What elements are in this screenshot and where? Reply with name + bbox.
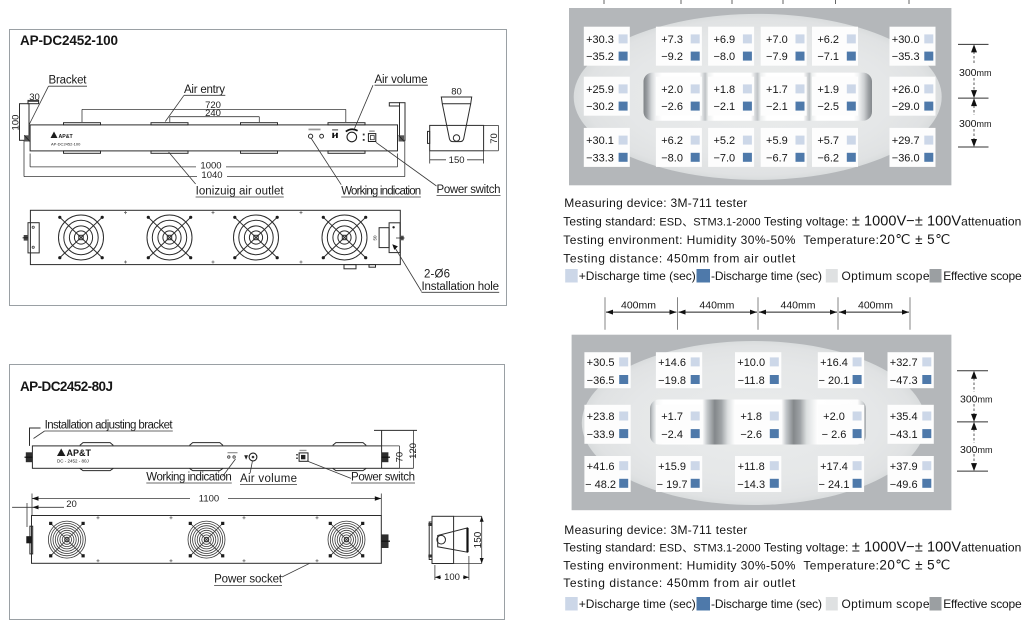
svg-text:+7.3: +7.3 — [661, 34, 683, 46]
svg-text:−6.2: −6.2 — [817, 152, 839, 164]
svg-text:Power switch: Power switch — [351, 472, 415, 484]
svg-text:Testing standard: ESD、STM3.1-2: Testing standard: ESD、STM3.1-2000 Testin… — [563, 214, 1021, 230]
svg-text:+6.9: +6.9 — [713, 34, 735, 46]
svg-text:150: 150 — [449, 155, 465, 166]
svg-text:80: 80 — [451, 87, 462, 98]
svg-text:−33.3: −33.3 — [586, 152, 614, 164]
svg-text:+16.4: +16.4 — [820, 357, 848, 369]
svg-text:Power socket: Power socket — [214, 574, 283, 586]
svg-text:70: 70 — [394, 452, 405, 463]
svg-text:Testing environment: Humidity: Testing environment: Humidity 30%-50% Te… — [563, 557, 950, 572]
svg-text:−2.1: −2.1 — [713, 101, 735, 113]
svg-text:+6.2: +6.2 — [661, 135, 683, 147]
svg-text:100: 100 — [11, 115, 22, 131]
svg-text:−7.1: −7.1 — [817, 51, 839, 63]
svg-text:−35.2: −35.2 — [586, 51, 614, 63]
svg-text:+1.8: +1.8 — [713, 84, 735, 96]
svg-text:−8.0: −8.0 — [713, 51, 735, 63]
svg-text:-Discharge time (sec): -Discharge time (sec) — [711, 597, 822, 611]
svg-text:2-Ø6: 2-Ø6 — [424, 269, 450, 281]
svg-text:+15.9: +15.9 — [658, 461, 686, 473]
svg-text:+35.4: +35.4 — [890, 411, 918, 423]
svg-text:−36.5: −36.5 — [587, 375, 615, 387]
svg-text:Air entry: Air entry — [184, 84, 225, 96]
svg-text:Testing distance: 450mm from a: Testing distance: 450mm from air outlet — [563, 252, 796, 266]
svg-text:−30.2: −30.2 — [586, 101, 614, 113]
svg-text:−19.8: −19.8 — [658, 375, 686, 387]
svg-text:−49.6: −49.6 — [890, 479, 918, 491]
svg-text:+17.4: +17.4 — [820, 461, 848, 473]
svg-text:+2.0: +2.0 — [661, 84, 683, 96]
svg-text:−7.9: −7.9 — [766, 51, 788, 63]
svg-text:−2.1: −2.1 — [766, 101, 788, 113]
svg-text:+14.6: +14.6 — [658, 357, 686, 369]
svg-text:+32.7: +32.7 — [890, 357, 918, 369]
svg-text:100: 100 — [444, 572, 460, 583]
svg-text:Air volume: Air volume — [375, 74, 428, 86]
svg-text:AP-DC2452-100: AP-DC2452-100 — [20, 33, 118, 48]
svg-text:−8.0: −8.0 — [661, 152, 683, 164]
svg-text:+30.5: +30.5 — [587, 357, 615, 369]
svg-text:Working indication: Working indication — [146, 472, 232, 484]
svg-text:+1.7: +1.7 — [766, 84, 788, 96]
svg-text:+5.9: +5.9 — [766, 135, 788, 147]
svg-text:AP&T: AP&T — [67, 448, 92, 458]
svg-text:Power switch: Power switch — [437, 184, 501, 196]
svg-text:−14.3: −14.3 — [737, 479, 765, 491]
svg-text:+1.7: +1.7 — [661, 411, 683, 423]
svg-text:− 20.1: − 20.1 — [819, 375, 850, 387]
svg-text:Effective scope: Effective scope — [943, 597, 1022, 611]
svg-text:+1.9: +1.9 — [817, 84, 839, 96]
svg-text:− 2.6: − 2.6 — [822, 429, 847, 441]
svg-text:150: 150 — [473, 531, 484, 548]
svg-text:Working indication: Working indication — [341, 186, 421, 198]
svg-text:+2.0: +2.0 — [823, 411, 845, 423]
svg-text:−2.4: −2.4 — [661, 429, 683, 441]
svg-text:+30.0: +30.0 — [892, 34, 920, 46]
svg-text:DC - 2452 - 80J: DC - 2452 - 80J — [57, 459, 89, 464]
svg-text:+5.2: +5.2 — [713, 135, 735, 147]
svg-text:50: 50 — [372, 235, 377, 241]
svg-text:+6.2: +6.2 — [817, 34, 839, 46]
svg-text:AP-DC2452-80J: AP-DC2452-80J — [20, 379, 113, 394]
svg-text:−11.8: −11.8 — [738, 375, 765, 387]
svg-text:−35.3: −35.3 — [892, 51, 920, 63]
svg-text:−47.3: −47.3 — [890, 375, 918, 387]
svg-text:20: 20 — [66, 499, 77, 510]
svg-text:Testing standard: ESD、STM3.1-2: Testing standard: ESD、STM3.1-2000 Testin… — [563, 540, 1021, 556]
svg-text:300mm: 300mm — [960, 444, 993, 456]
svg-text:Installation hole: Installation hole — [422, 281, 500, 293]
svg-text:Testing environment: Humidity: Testing environment: Humidity 30%-50% Te… — [563, 232, 950, 247]
svg-text:+30.3: +30.3 — [586, 34, 614, 46]
svg-text:Effective scope: Effective scope — [943, 269, 1022, 283]
svg-text:240: 240 — [205, 108, 221, 119]
svg-text:1040: 1040 — [201, 170, 222, 181]
svg-text:− 19.7: − 19.7 — [657, 479, 688, 491]
svg-text:−2.5: −2.5 — [817, 101, 839, 113]
svg-text:300mm: 300mm — [959, 67, 992, 79]
svg-text:−36.0: −36.0 — [892, 152, 920, 164]
svg-text:Installation adjusting bracket: Installation adjusting bracket — [45, 420, 174, 432]
svg-text:Ionizuig air outlet: Ionizuig air outlet — [196, 186, 285, 198]
svg-text:+30.1: +30.1 — [586, 135, 614, 147]
svg-text:Bracket: Bracket — [49, 75, 88, 87]
svg-text:Measuring device: 3M-711 teste: Measuring device: 3M-711 tester — [564, 196, 747, 210]
svg-text:400mm: 400mm — [621, 300, 656, 312]
svg-text:Measuring device: 3M-711 teste: Measuring device: 3M-711 tester — [564, 523, 747, 537]
svg-text:−43.1: −43.1 — [890, 429, 918, 441]
svg-text:−6.7: −6.7 — [766, 152, 788, 164]
svg-text:+41.6: +41.6 — [587, 461, 615, 473]
svg-text:120: 120 — [408, 443, 419, 459]
svg-text:+Discharge time (sec): +Discharge time (sec) — [579, 597, 696, 611]
svg-text:+29.7: +29.7 — [892, 135, 920, 147]
svg-text:+1.8: +1.8 — [740, 411, 762, 423]
svg-text:+5.7: +5.7 — [817, 135, 839, 147]
svg-text:−2.6: −2.6 — [661, 101, 683, 113]
svg-text:Optimum scope: Optimum scope — [842, 269, 930, 283]
svg-text:1100: 1100 — [199, 494, 219, 505]
svg-text:+10.0: +10.0 — [737, 357, 765, 369]
svg-text:440mm: 440mm — [780, 300, 815, 312]
svg-text:Air volume: Air volume — [240, 473, 297, 485]
svg-text:−2.6: −2.6 — [740, 429, 762, 441]
svg-text:-Discharge time (sec): -Discharge time (sec) — [711, 269, 822, 283]
svg-text:400mm: 400mm — [858, 300, 893, 312]
svg-text:300mm: 300mm — [959, 118, 992, 130]
svg-text:+37.9: +37.9 — [890, 461, 918, 473]
svg-text:+7.0: +7.0 — [766, 34, 788, 46]
svg-text:AP-DC2452-100: AP-DC2452-100 — [51, 142, 81, 147]
svg-text:−33.9: −33.9 — [587, 429, 615, 441]
svg-text:440mm: 440mm — [699, 300, 734, 312]
svg-text:+Discharge time (sec): +Discharge time (sec) — [579, 269, 696, 283]
svg-text:+26.0: +26.0 — [892, 84, 920, 96]
svg-text:−7.0: −7.0 — [713, 152, 735, 164]
svg-text:70: 70 — [489, 133, 500, 144]
svg-text:+11.8: +11.8 — [738, 461, 765, 473]
svg-text:−29.0: −29.0 — [892, 101, 920, 113]
svg-text:− 48.2: − 48.2 — [585, 479, 616, 491]
svg-text:− 24.1: − 24.1 — [819, 479, 850, 491]
svg-text:+23.8: +23.8 — [587, 411, 615, 423]
svg-text:Optimum scope: Optimum scope — [842, 597, 930, 611]
svg-text:Testing distance: 450mm from a: Testing distance: 450mm from air outlet — [563, 576, 796, 590]
svg-text:+25.9: +25.9 — [586, 84, 614, 96]
svg-text:AP&T: AP&T — [59, 134, 74, 140]
svg-text:−9.2: −9.2 — [661, 51, 683, 63]
svg-text:300mm: 300mm — [960, 394, 993, 406]
